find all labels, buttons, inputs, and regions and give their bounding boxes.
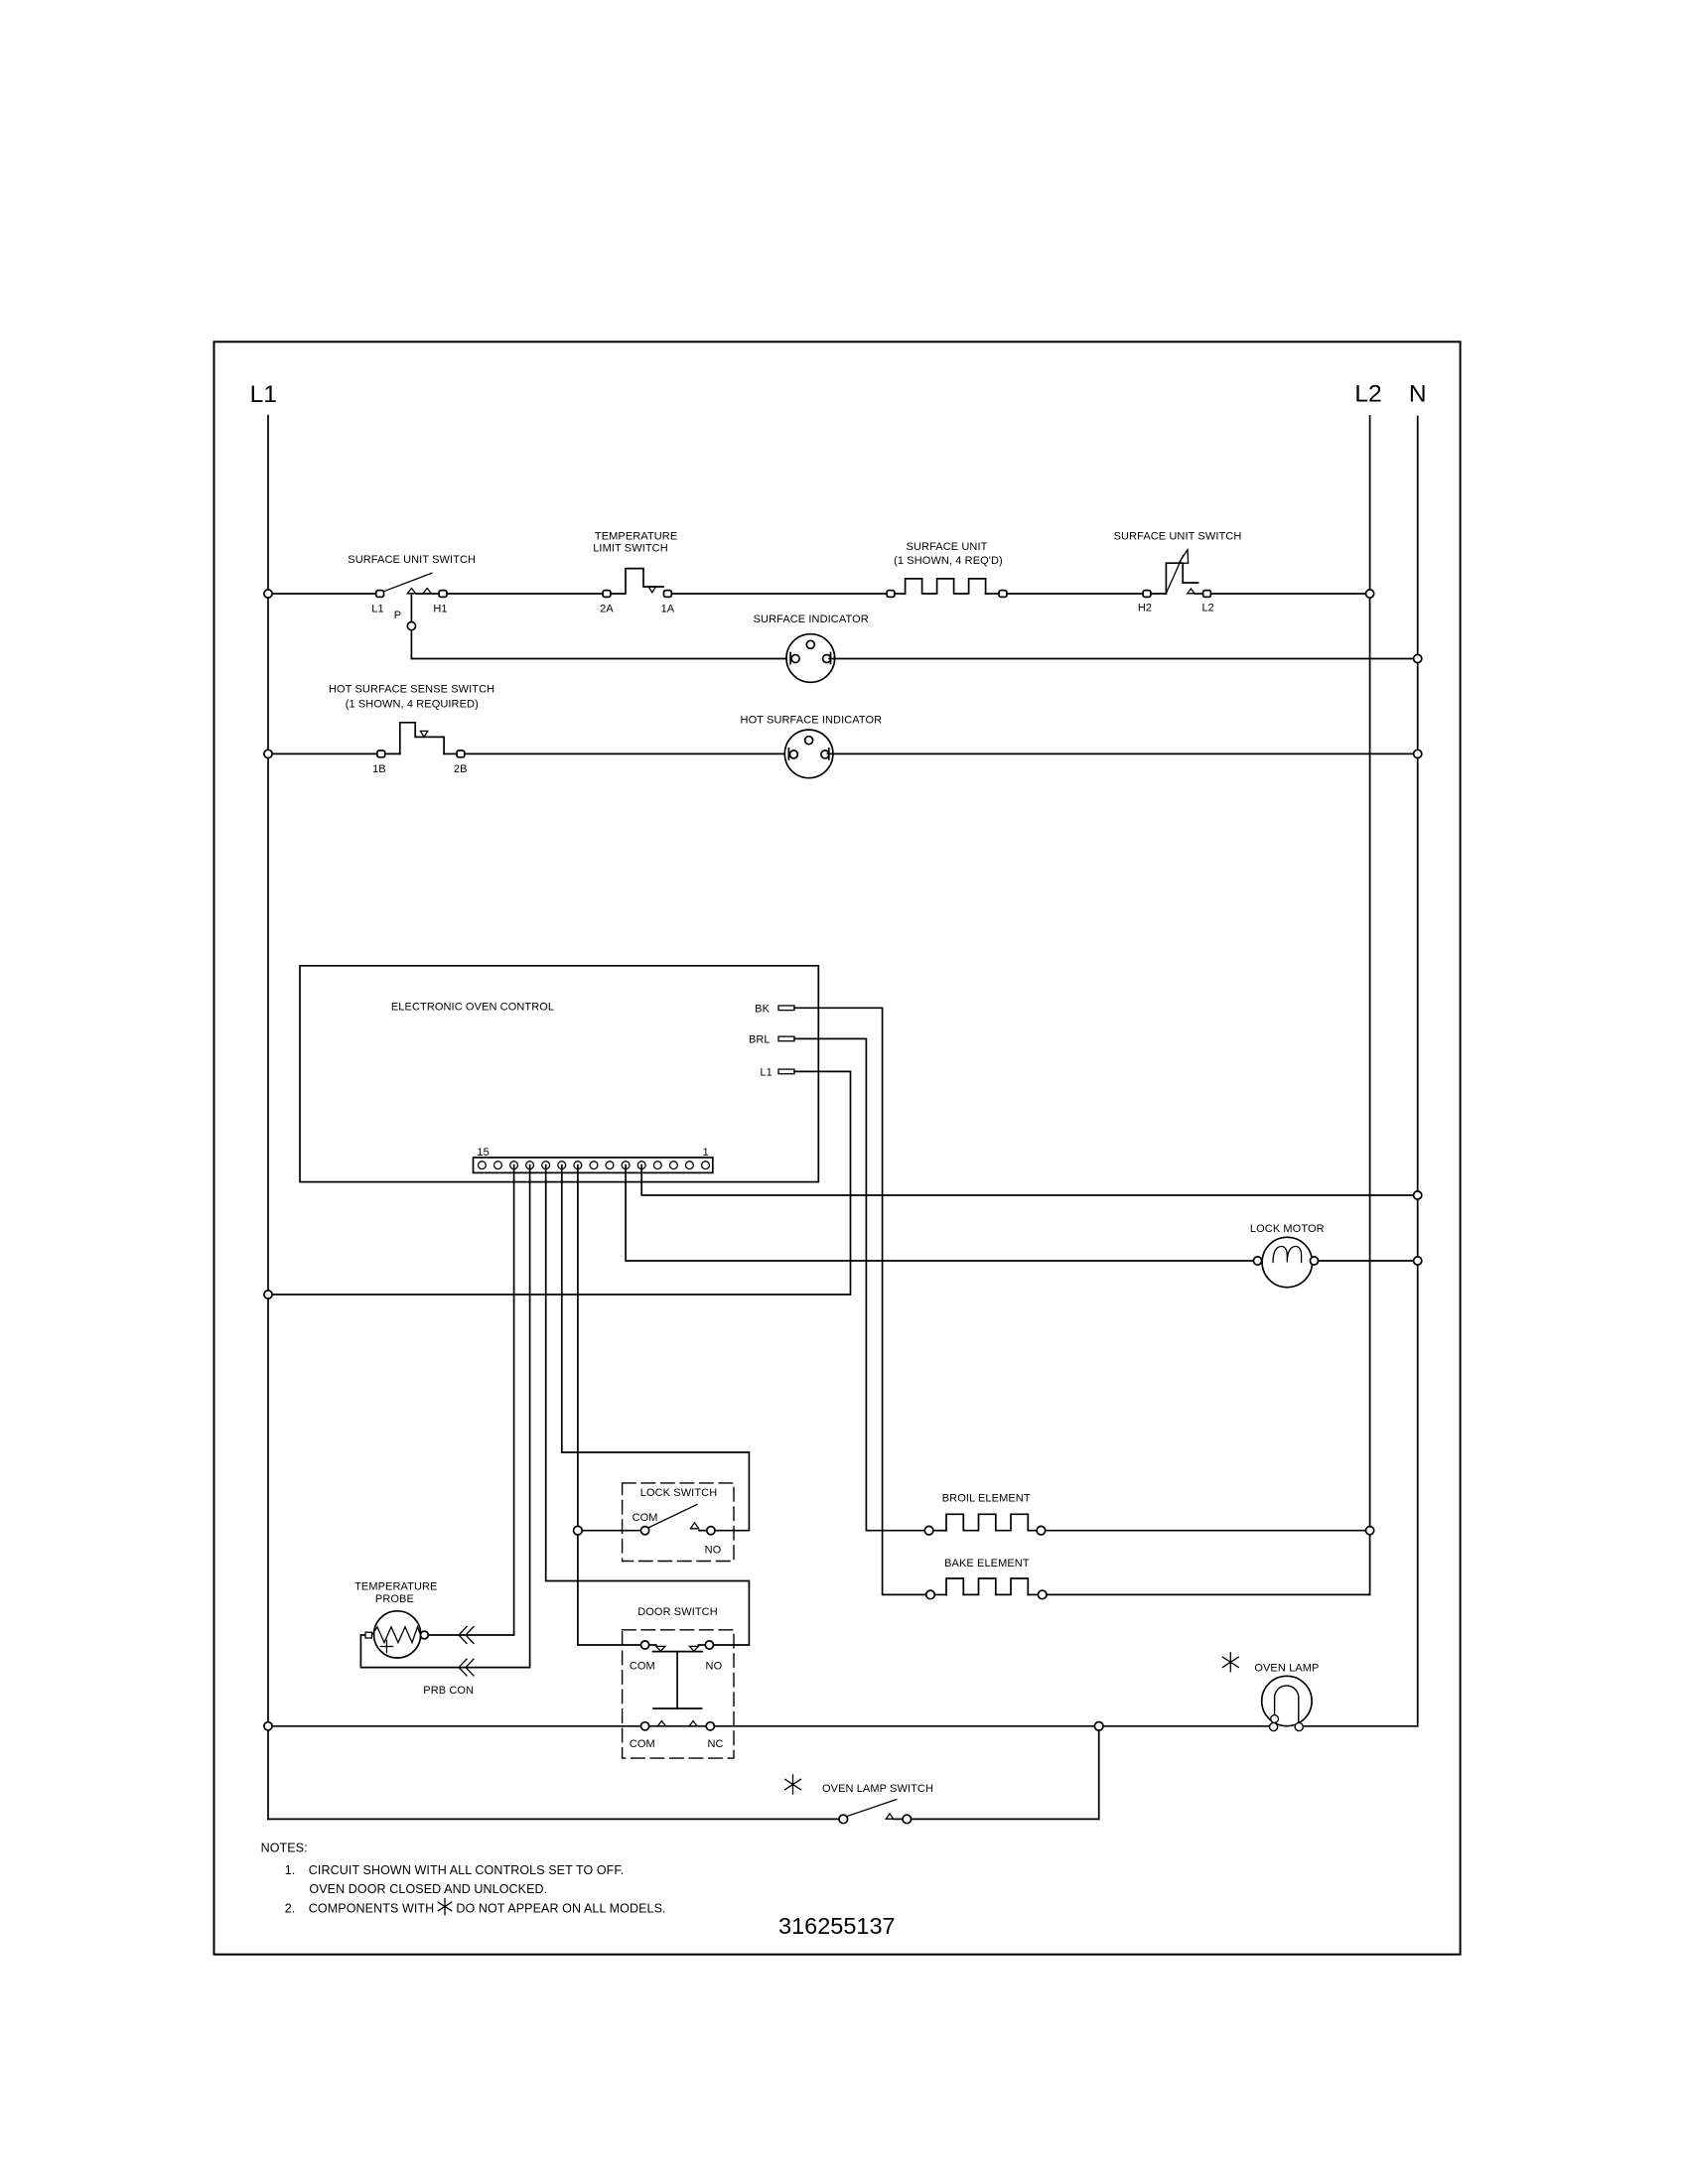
svg-text:COM: COM [630, 1738, 655, 1750]
svg-text:1B: 1B [372, 763, 386, 775]
svg-text:SURFACE INDICATOR: SURFACE INDICATOR [754, 614, 869, 625]
svg-text:BRL: BRL [749, 1033, 771, 1045]
svg-text:L1: L1 [760, 1066, 772, 1078]
svg-text:DOOR SWITCH: DOOR SWITCH [637, 1606, 718, 1618]
svg-text:1: 1 [703, 1147, 709, 1159]
svg-text:H2: H2 [1138, 603, 1152, 614]
svg-text:PROBE: PROBE [375, 1593, 414, 1605]
svg-text:L1: L1 [250, 381, 277, 408]
svg-text:SURFACE UNIT SWITCH: SURFACE UNIT SWITCH [1114, 531, 1242, 543]
svg-text:COM: COM [633, 1512, 658, 1524]
svg-text:LOCK MOTOR: LOCK MOTOR [1250, 1223, 1325, 1235]
svg-text:OVEN LAMP: OVEN LAMP [1254, 1662, 1319, 1674]
svg-text:2B: 2B [454, 763, 468, 775]
svg-text:2A: 2A [600, 604, 614, 615]
svg-text:CIRCUIT SHOWN WITH ALL CONTROL: CIRCUIT SHOWN WITH ALL CONTROLS SET TO O… [309, 1863, 625, 1877]
svg-text:NO: NO [705, 1545, 722, 1557]
svg-text:NC: NC [707, 1738, 723, 1750]
svg-text:L2: L2 [1354, 381, 1381, 408]
svg-text:NOTES:: NOTES: [261, 1842, 308, 1855]
svg-text:OVEN DOOR CLOSED AND UNLOCKED.: OVEN DOOR CLOSED AND UNLOCKED. [309, 1882, 547, 1896]
svg-text:L1: L1 [371, 604, 383, 615]
svg-text:LIMIT SWITCH: LIMIT SWITCH [593, 543, 668, 555]
svg-text:PRB CON: PRB CON [423, 1685, 474, 1697]
svg-text:L2: L2 [1201, 603, 1213, 614]
svg-text:HOT SURFACE INDICATOR: HOT SURFACE INDICATOR [741, 715, 883, 727]
svg-text:1A: 1A [661, 604, 675, 615]
svg-text:TEMPERATURE: TEMPERATURE [595, 531, 677, 543]
svg-text:BK: BK [755, 1003, 770, 1015]
svg-text:LOCK SWITCH: LOCK SWITCH [640, 1487, 718, 1499]
svg-text:SURFACE UNIT: SURFACE UNIT [907, 541, 988, 553]
svg-text:(1 SHOWN, 4 REQ'D): (1 SHOWN, 4 REQ'D) [894, 555, 1003, 567]
svg-text:COM: COM [630, 1661, 655, 1673]
svg-text:15: 15 [477, 1147, 489, 1159]
svg-text:COMPONENTS WITH: COMPONENTS WITH [309, 1902, 435, 1916]
svg-text:NO: NO [706, 1661, 723, 1673]
svg-text:P: P [394, 610, 401, 621]
svg-text:SURFACE UNIT SWITCH: SURFACE UNIT SWITCH [348, 554, 476, 566]
svg-text:HOT SURFACE SENSE SWITCH: HOT SURFACE SENSE SWITCH [329, 683, 494, 695]
svg-text:N: N [1409, 381, 1427, 408]
svg-text:TEMPERATURE: TEMPERATURE [354, 1581, 437, 1593]
svg-text:H1: H1 [433, 604, 447, 615]
svg-text:(1 SHOWN, 4 REQUIRED): (1 SHOWN, 4 REQUIRED) [346, 699, 479, 711]
svg-text:BAKE ELEMENT: BAKE ELEMENT [944, 1558, 1030, 1570]
svg-text:OVEN LAMP SWITCH: OVEN LAMP SWITCH [822, 1783, 933, 1795]
svg-text:2.: 2. [285, 1902, 296, 1916]
svg-text:BROIL ELEMENT: BROIL ELEMENT [942, 1493, 1031, 1505]
svg-text:DO NOT APPEAR ON ALL MODELS.: DO NOT APPEAR ON ALL MODELS. [456, 1902, 665, 1916]
svg-text:ELECTRONIC OVEN CONTROL: ELECTRONIC OVEN CONTROL [391, 1002, 554, 1014]
svg-text:316255137: 316255137 [778, 1913, 896, 1939]
svg-text:1.: 1. [285, 1863, 296, 1877]
